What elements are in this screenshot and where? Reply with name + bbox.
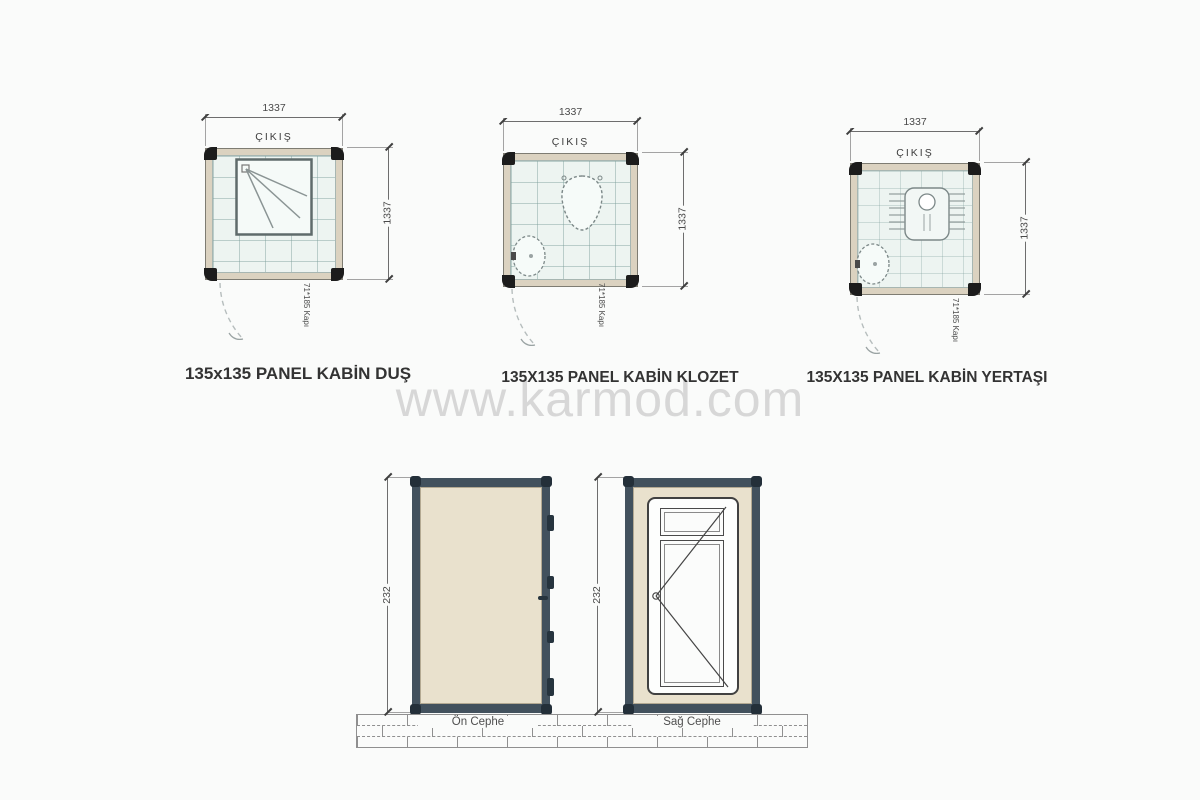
side-elevation-height-dimension: 232 (583, 581, 611, 609)
extension-line (597, 477, 625, 478)
plan2-title: 135X135 PANEL KABİN KLOZET (470, 369, 770, 387)
front-elevation-label: Ön Cephe (418, 716, 538, 728)
side-elevation-label: Sağ Cephe (632, 716, 752, 728)
plan2-exit-label: ÇIKIŞ (503, 136, 638, 148)
corner-bracket-icon (502, 152, 515, 165)
plan2-cabin-toilet (503, 153, 638, 287)
plan3-door-size-label: 71*185 Kapı (940, 298, 960, 354)
extension-line (597, 712, 625, 713)
brick-row (357, 737, 807, 748)
technical-drawing-sheet: www.karmod.com 1337 ÇIKIŞ 1337 71*185 Ka… (0, 0, 1200, 800)
dimension-line (205, 117, 343, 118)
corner-bracket-icon (968, 162, 981, 175)
door-opening-direction-icon (649, 499, 737, 693)
hinge-icon (547, 678, 554, 696)
plan1-width-dimension: 1337 (205, 102, 343, 114)
extension-line (387, 477, 412, 478)
extension-line (387, 712, 412, 713)
plan2-door-size-label: 71*185 Kapı (586, 283, 606, 339)
front-elevation (412, 478, 550, 713)
door-handle-icon (538, 596, 548, 600)
toilet-icon (555, 171, 609, 235)
squat-toilet-icon (888, 187, 966, 242)
plan3-height-dimension: 1337 (1011, 214, 1039, 242)
hinge-icon (547, 576, 554, 589)
corner-bracket-icon (968, 283, 981, 296)
dimension-line (503, 121, 638, 122)
plan1-door-size-label: 71*185 Kapı (291, 283, 311, 339)
side-elevation (625, 478, 760, 713)
corner-cap-icon (751, 476, 762, 487)
corner-bracket-icon (204, 268, 217, 281)
corner-cap-icon (541, 476, 552, 487)
plan1-exit-label: ÇIKIŞ (205, 131, 343, 143)
door-swing-icon (849, 295, 949, 357)
corner-bracket-icon (626, 275, 639, 288)
plan3-title: 135X135 PANEL KABİN YERTAŞI (777, 369, 1077, 387)
front-elevation-panel (420, 487, 542, 704)
corner-bracket-icon (626, 152, 639, 165)
hinge-icon (547, 515, 554, 531)
corner-bracket-icon (331, 147, 344, 160)
plan1-height-dimension: 1337 (374, 199, 402, 227)
corner-bracket-icon (849, 162, 862, 175)
plan3-width-dimension: 1337 (850, 116, 980, 128)
hinge-icon (547, 631, 554, 643)
cabin-door (647, 497, 739, 695)
corner-bracket-icon (204, 147, 217, 160)
dimension-line (850, 131, 980, 132)
plan3-exit-label: ÇIKIŞ (850, 147, 980, 159)
front-elevation-height-dimension: 232 (373, 581, 401, 609)
corner-cap-icon (410, 476, 421, 487)
plan2-width-dimension: 1337 (503, 106, 638, 118)
plan1-cabin-shower (205, 148, 343, 280)
plan3-cabin-squat-toilet (850, 163, 980, 295)
corner-bracket-icon (331, 268, 344, 281)
plan1-title: 135x135 PANEL KABİN DUŞ (148, 364, 448, 384)
corner-cap-icon (623, 476, 634, 487)
sink-icon (854, 241, 892, 287)
shower-tray-icon (235, 158, 313, 236)
plan2-height-dimension: 1337 (669, 205, 697, 233)
sink-icon (510, 233, 548, 279)
